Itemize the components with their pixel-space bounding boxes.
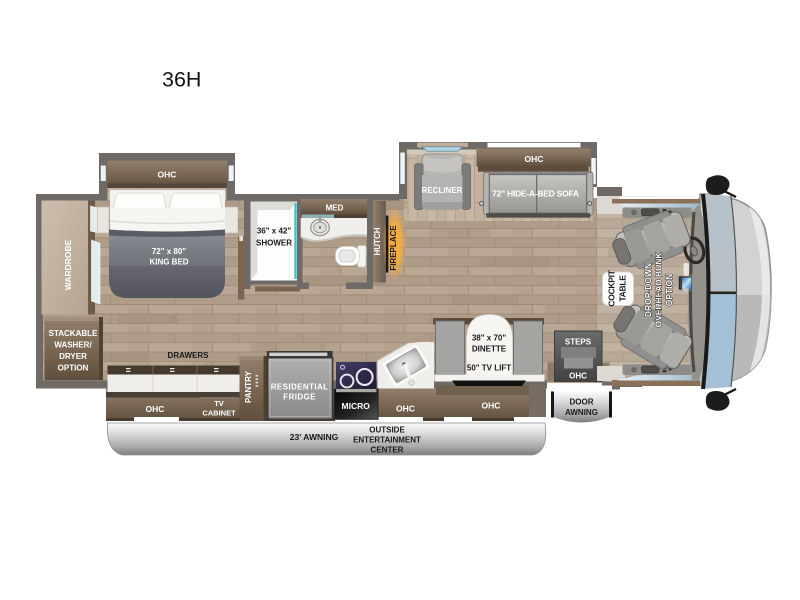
svg-text:DRYER: DRYER (59, 352, 87, 361)
svg-text:ENTERTAINMENT: ENTERTAINMENT (353, 436, 421, 445)
svg-text:38" x 70": 38" x 70" (472, 334, 506, 343)
svg-text:OHC: OHC (158, 170, 177, 180)
svg-text:OVERHEAD BUNK: OVERHEAD BUNK (654, 252, 664, 328)
svg-text:OHC: OHC (525, 154, 544, 164)
svg-text:DINETTE: DINETTE (472, 345, 507, 354)
svg-text:RESIDENTIAL: RESIDENTIAL (271, 383, 329, 392)
svg-text:TV: TV (214, 399, 224, 408)
svg-text:23' AWNING: 23' AWNING (290, 432, 339, 442)
svg-text:WARDROBE: WARDROBE (63, 239, 73, 290)
svg-text:AWNING: AWNING (565, 408, 598, 417)
svg-text:CENTER: CENTER (371, 446, 404, 455)
svg-text:MED: MED (326, 204, 344, 213)
svg-text:FIREPLACE: FIREPLACE (389, 225, 398, 271)
svg-text:36" x 42": 36" x 42" (257, 227, 291, 236)
svg-text:WASHER/: WASHER/ (54, 341, 92, 350)
svg-text:OHC: OHC (146, 404, 165, 414)
svg-text:MICRO: MICRO (342, 401, 371, 411)
svg-text:DOOR: DOOR (570, 398, 594, 407)
svg-text:CABINET: CABINET (202, 409, 236, 418)
svg-text:RECLINER: RECLINER (422, 186, 463, 195)
svg-text:PANTRY: PANTRY (244, 370, 253, 403)
svg-text:72" x 80": 72" x 80" (152, 247, 186, 256)
svg-text:36H: 36H (162, 68, 201, 92)
svg-text:OPTION: OPTION (58, 364, 89, 373)
svg-text:DROP-DOWN: DROP-DOWN (643, 263, 653, 317)
svg-text:50" TV LIFT: 50" TV LIFT (467, 364, 511, 373)
svg-text:OHC: OHC (569, 372, 587, 381)
svg-text:HUTCH: HUTCH (373, 227, 382, 255)
svg-text:TABLE: TABLE (618, 275, 628, 302)
svg-text:FRIDGE: FRIDGE (283, 393, 316, 402)
svg-text:72" HIDE-A-BED SOFA: 72" HIDE-A-BED SOFA (492, 189, 579, 199)
svg-text:KING BED: KING BED (149, 258, 188, 267)
svg-text:OHC: OHC (396, 404, 415, 414)
svg-text:SHOWER: SHOWER (256, 239, 292, 248)
svg-text:OHC: OHC (482, 401, 501, 411)
svg-text:OUTSIDE: OUTSIDE (369, 426, 405, 435)
svg-text:STACKABLE: STACKABLE (49, 329, 98, 338)
svg-text:DRAWERS: DRAWERS (168, 351, 210, 360)
svg-text:OPTION: OPTION (664, 274, 674, 307)
svg-text:COCKPIT: COCKPIT (607, 269, 617, 306)
svg-text:STEPS: STEPS (565, 338, 592, 347)
